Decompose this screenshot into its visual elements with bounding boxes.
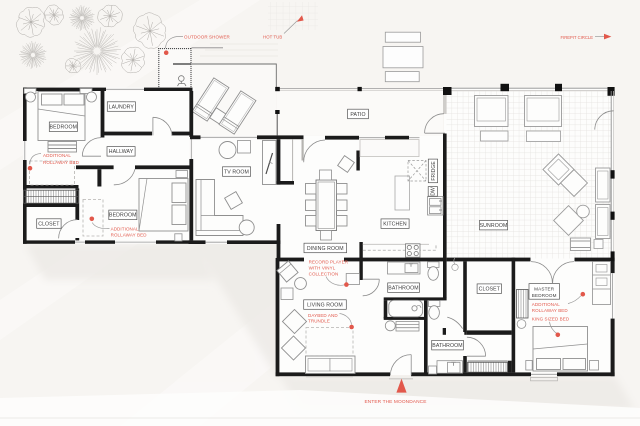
svg-text:DAYBED AND: DAYBED AND (308, 313, 338, 318)
svg-text:WITH VINYL: WITH VINYL (309, 266, 336, 271)
svg-text:BATHROOM: BATHROOM (432, 343, 462, 349)
svg-text:BEDROOM: BEDROOM (532, 293, 557, 298)
svg-text:CLOSET: CLOSET (479, 287, 501, 293)
svg-text:KITCHEN: KITCHEN (383, 222, 407, 228)
svg-text:BEDROOM: BEDROOM (50, 125, 78, 131)
svg-text:RECORD PLAYER: RECORD PLAYER (309, 260, 349, 265)
svg-text:DINING ROOM: DINING ROOM (307, 246, 344, 252)
svg-text:PATIO: PATIO (350, 112, 365, 118)
svg-text:HOT TUB: HOT TUB (263, 35, 282, 40)
svg-text:ENTER THE MOONDANCE: ENTER THE MOONDANCE (364, 399, 426, 405)
svg-text:LIVING ROOM: LIVING ROOM (307, 302, 343, 308)
svg-text:ROLLAWAY BED: ROLLAWAY BED (111, 233, 148, 238)
svg-text:ADDITIONAL: ADDITIONAL (532, 302, 560, 307)
svg-text:ROLLAWAY BED: ROLLAWAY BED (43, 160, 80, 165)
svg-text:DW: DW (431, 187, 437, 196)
svg-text:TRUNDLE: TRUNDLE (308, 318, 330, 323)
svg-text:ADDITIONAL: ADDITIONAL (43, 153, 71, 158)
svg-text:OUTDOOR SHOWER: OUTDOOR SHOWER (184, 34, 231, 39)
svg-text:KING SIZED BED: KING SIZED BED (532, 317, 570, 322)
svg-text:TV ROOM: TV ROOM (224, 169, 249, 175)
svg-text:ROLLAWAY BED: ROLLAWAY BED (532, 308, 569, 313)
svg-text:FIREPIT CIRCLE: FIREPIT CIRCLE (561, 35, 594, 40)
svg-text:SUNROOM: SUNROOM (480, 223, 508, 229)
svg-text:FRIDGE: FRIDGE (431, 161, 437, 181)
svg-text:COLLECTION: COLLECTION (309, 272, 339, 277)
svg-text:BATHROOM: BATHROOM (388, 286, 418, 292)
svg-text:MASTER: MASTER (534, 286, 555, 291)
svg-text:ADDITIONAL: ADDITIONAL (111, 227, 139, 232)
svg-text:LAUNDRY: LAUNDRY (109, 104, 135, 110)
svg-text:BEDROOM: BEDROOM (109, 213, 137, 219)
svg-text:CLOSET: CLOSET (38, 221, 60, 227)
svg-text:HALLWAY: HALLWAY (109, 149, 134, 155)
